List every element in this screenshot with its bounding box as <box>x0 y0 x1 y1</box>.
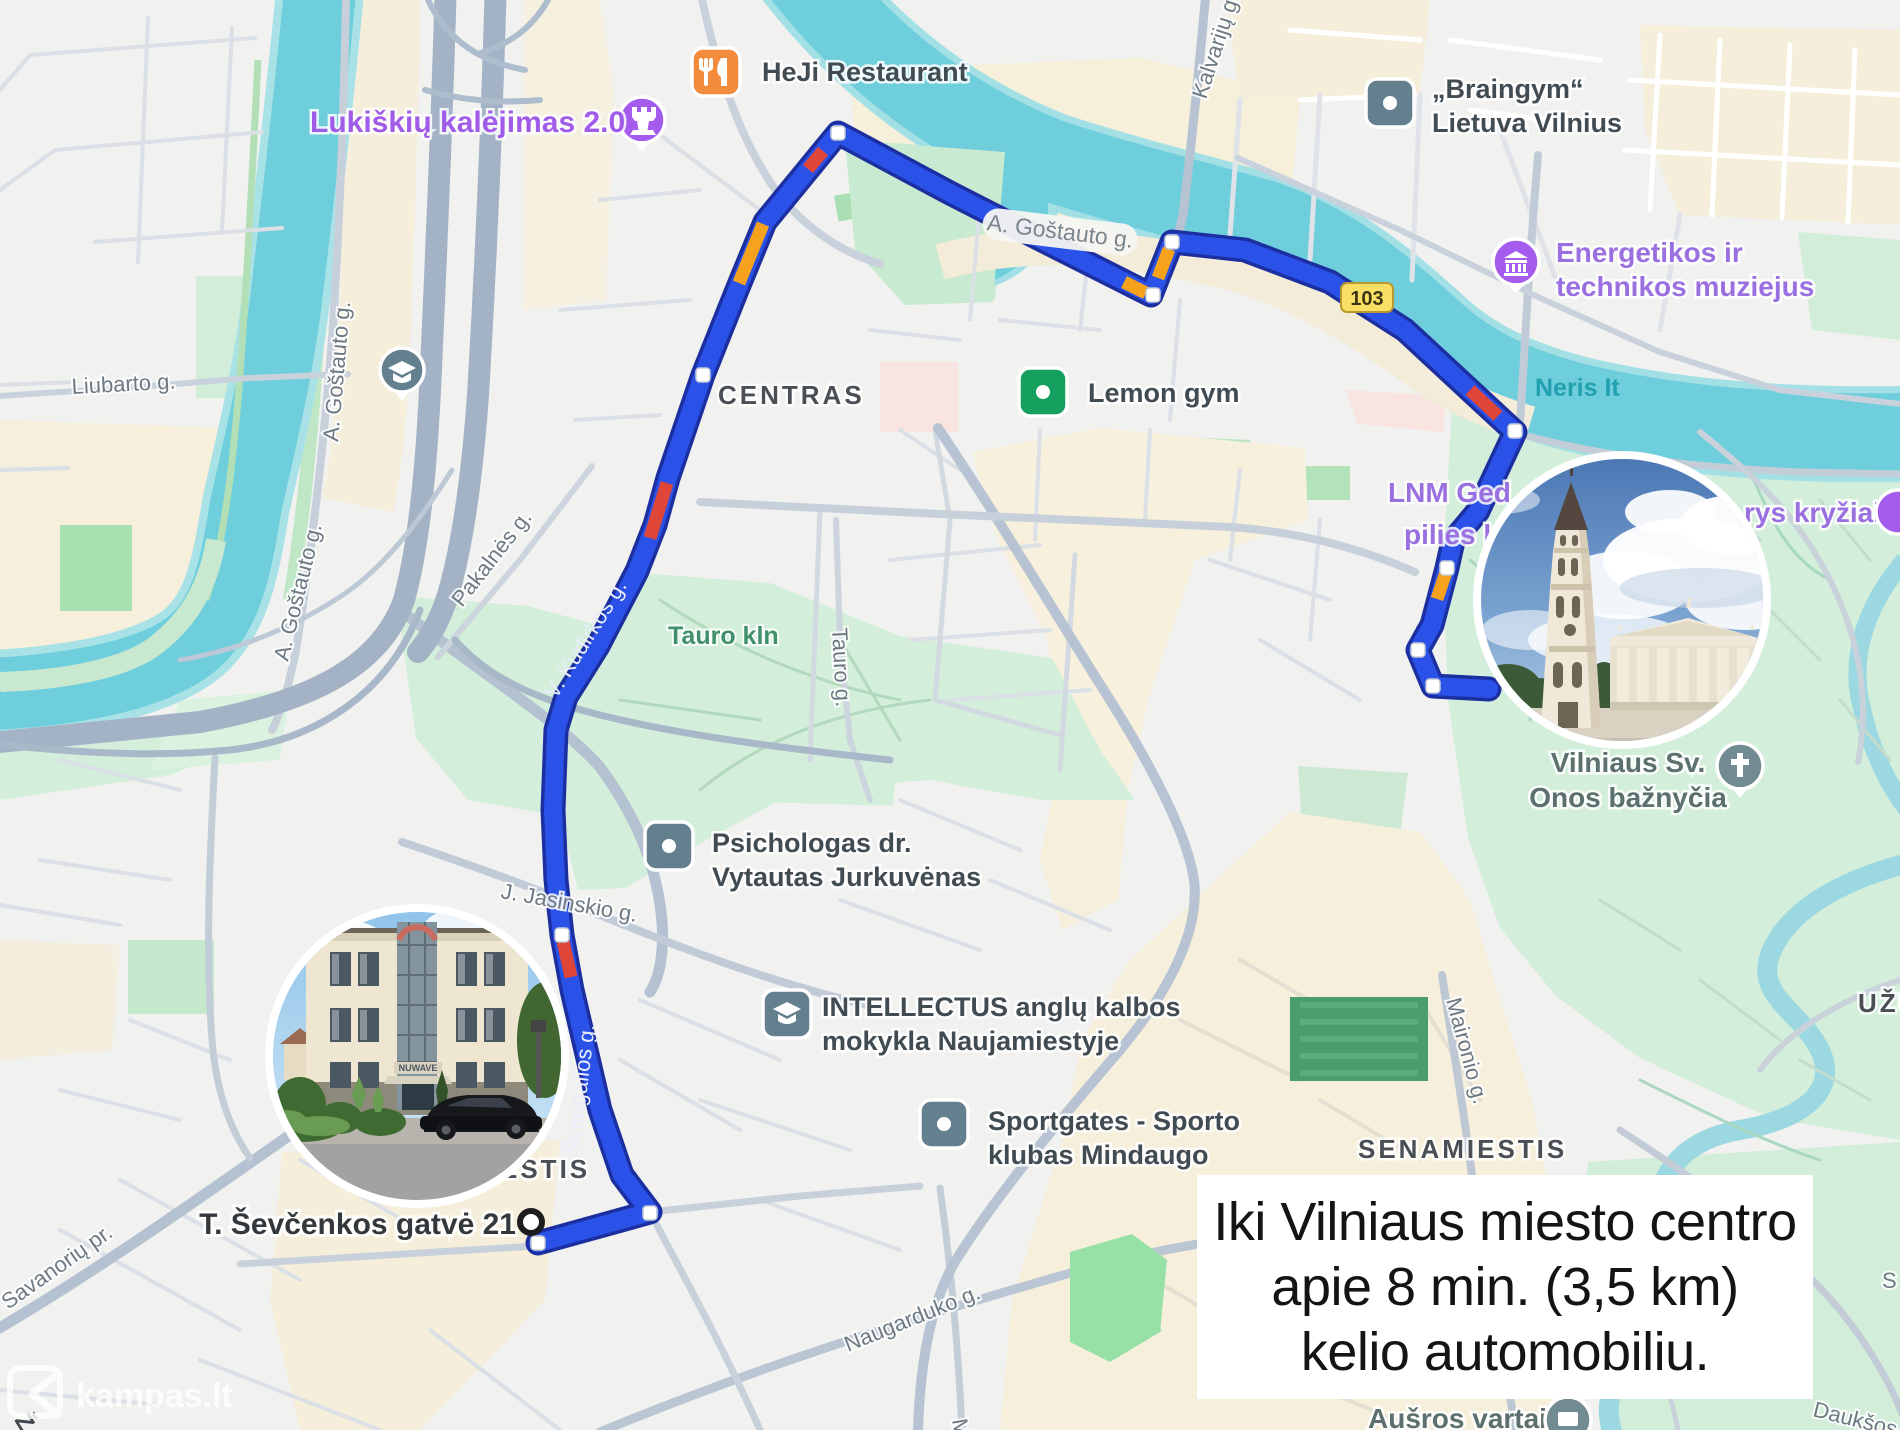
svg-text:rys kryžiai: rys kryžiai <box>1744 497 1881 528</box>
svg-text:Onos bažnyčia: Onos bažnyčia <box>1529 782 1727 813</box>
svg-text:Lukiškių kalėjimas 2.0: Lukiškių kalėjimas 2.0 <box>310 106 625 139</box>
svg-text:klubas Mindaugo: klubas Mindaugo <box>988 1140 1209 1170</box>
svg-text:Psichologas dr.: Psichologas dr. <box>712 828 912 858</box>
svg-text:103: 103 <box>1350 288 1383 310</box>
svg-text:Lietuva Vilnius: Lietuva Vilnius <box>1432 108 1622 138</box>
svg-text:LNM Ged: LNM Ged <box>1388 477 1511 508</box>
svg-text:kampas.lt: kampas.lt <box>76 1377 233 1415</box>
svg-text:T. Ševčenkos gatvė 21: T. Ševčenkos gatvė 21 <box>199 1207 516 1241</box>
svg-text:Iki Vilniaus miesto centro: Iki Vilniaus miesto centro <box>1213 1192 1796 1252</box>
svg-text:Vytautas Jurkuvėnas: Vytautas Jurkuvėnas <box>712 862 981 892</box>
svg-text:apie 8 min. (3,5 km): apie 8 min. (3,5 km) <box>1271 1257 1738 1317</box>
svg-text:NUWAVE: NUWAVE <box>399 1063 438 1073</box>
svg-text:kelio automobiliu.: kelio automobiliu. <box>1301 1322 1709 1382</box>
svg-text:Aušros vartai: Aušros vartai <box>1368 1403 1547 1430</box>
svg-text:HeJi Restaurant: HeJi Restaurant <box>762 57 968 87</box>
svg-text:Tauro g.: Tauro g. <box>827 627 856 708</box>
svg-text:technikos muziejus: technikos muziejus <box>1556 271 1814 302</box>
svg-text:UŽUP: UŽUP <box>1858 988 1900 1018</box>
svg-text:mokykla Naujamiestyje: mokykla Naujamiestyje <box>822 1026 1119 1056</box>
svg-text:Vilniaus Sv.: Vilniaus Sv. <box>1551 747 1706 778</box>
svg-text:S: S <box>1882 1268 1897 1293</box>
svg-text:CENTRAS: CENTRAS <box>718 380 865 410</box>
svg-text:Sportgates - Sporto: Sportgates - Sporto <box>988 1106 1240 1136</box>
svg-text:Tauro kln: Tauro kln <box>668 622 779 650</box>
svg-text:Energetikos ir: Energetikos ir <box>1556 237 1743 268</box>
svg-text:„Braingym“: „Braingym“ <box>1432 74 1584 104</box>
svg-text:SENAMIESTIS: SENAMIESTIS <box>1358 1134 1567 1164</box>
svg-text:Neris It: Neris It <box>1535 374 1620 402</box>
svg-text:Lemon gym: Lemon gym <box>1088 378 1240 408</box>
svg-text:INTELLECTUS anglų kalbos: INTELLECTUS anglų kalbos <box>822 992 1181 1022</box>
